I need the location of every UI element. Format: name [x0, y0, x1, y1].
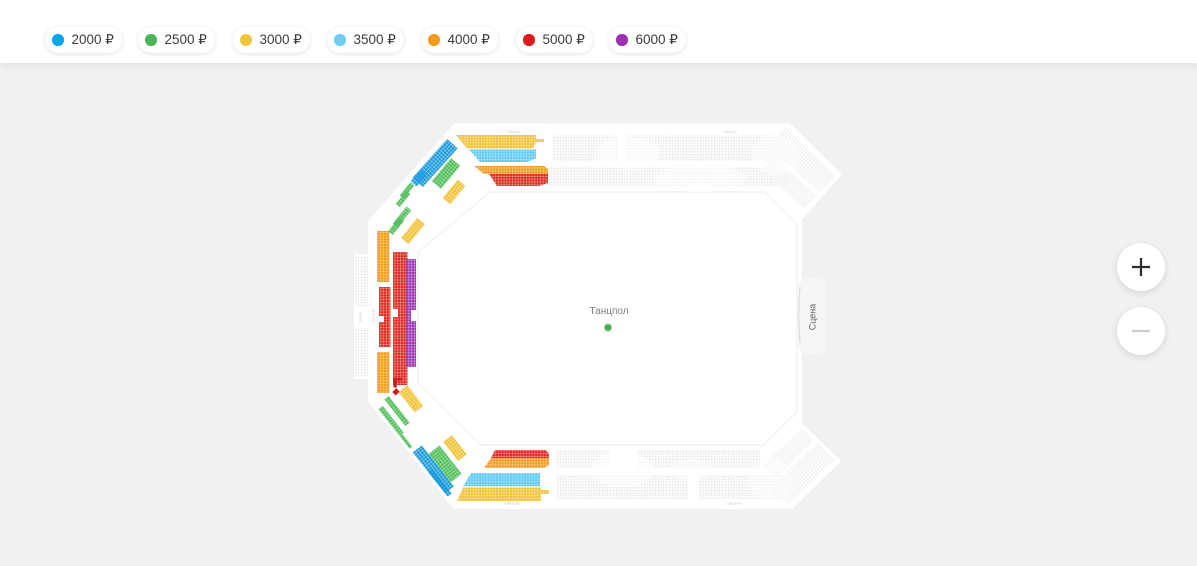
svg-text:Танцпол: Танцпол	[589, 306, 628, 317]
svg-text:Сектор 14: Сектор 14	[727, 502, 742, 506]
svg-text:Балкон: Балкон	[359, 311, 363, 322]
svg-text:Сектор 10: Сектор 10	[372, 308, 376, 323]
svg-text:Сектор 4: Сектор 4	[507, 130, 520, 134]
svg-text:Сектор 2: Сектор 2	[723, 130, 736, 134]
svg-text:Сектор 16: Сектор 16	[505, 502, 520, 506]
svg-text:Сцена: Сцена	[807, 304, 817, 331]
